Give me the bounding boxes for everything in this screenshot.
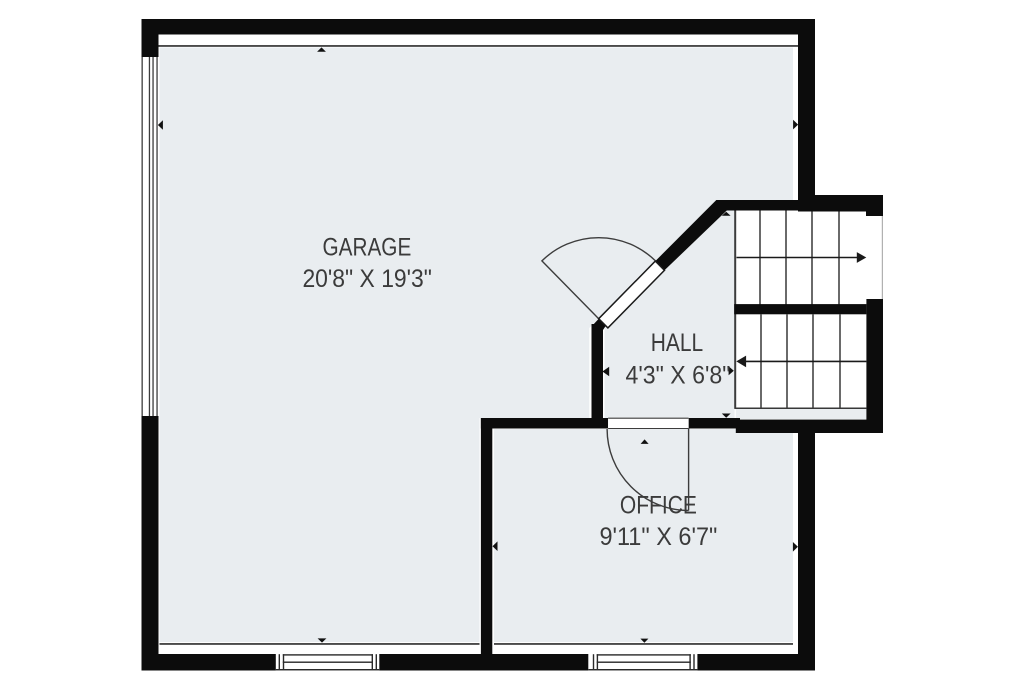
svg-text:GARAGE: GARAGE (323, 234, 412, 262)
svg-text:20'8" X 19'3": 20'8" X 19'3" (302, 265, 432, 293)
svg-text:4'3" X 6'8": 4'3" X 6'8" (626, 362, 731, 390)
svg-text:HALL: HALL (651, 329, 703, 357)
svg-text:OFFICE: OFFICE (620, 492, 697, 520)
svg-text:9'11" X 6'7": 9'11" X 6'7" (599, 523, 717, 551)
